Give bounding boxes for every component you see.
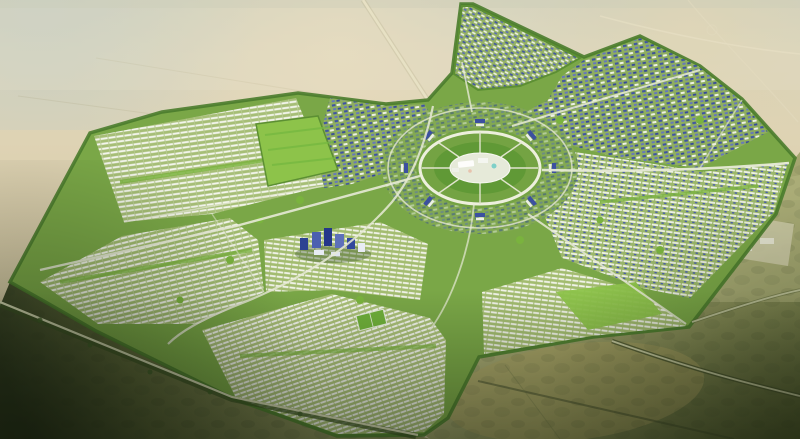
scene-svg	[0, 0, 800, 439]
vignette-corner-left	[0, 160, 480, 439]
vignette	[0, 0, 800, 439]
vignette-corner-right	[460, 200, 800, 439]
aerial-city-masterplan-render: Aerial rendering of a master-planned des…	[0, 0, 800, 439]
